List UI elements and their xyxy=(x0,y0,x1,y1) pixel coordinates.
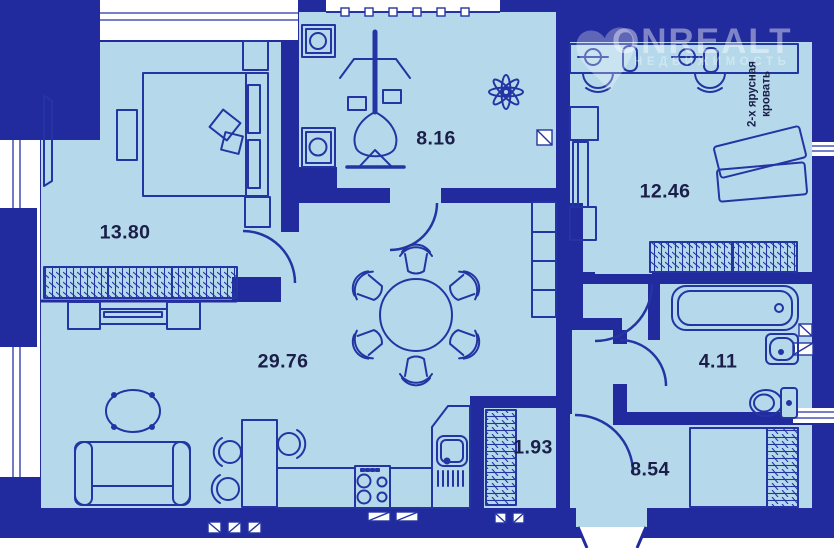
room-label-loggia: 8.16 xyxy=(416,128,456,151)
room-label-kids: 12.46 xyxy=(640,181,691,204)
kitchen-sink xyxy=(432,406,470,508)
room-label-bedroom: 13.80 xyxy=(100,222,151,245)
storage-wardrobe xyxy=(486,410,516,505)
room-label-bathroom: 4.11 xyxy=(699,351,737,374)
wardrobe xyxy=(44,267,237,298)
room-label-storage: 1.93 xyxy=(513,437,553,460)
floor-plan: 13.80 8.16 12.46 29.76 4.11 1.93 8.54 2-… xyxy=(0,0,834,548)
watermark-tagline: НЕДВИЖИМОСТЬ xyxy=(634,56,814,68)
stove xyxy=(355,466,390,508)
wardrobe xyxy=(650,242,797,272)
hall-wardrobe xyxy=(767,428,798,507)
room-label-living: 29.76 xyxy=(258,351,309,374)
room-label-hallway: 8.54 xyxy=(630,459,670,482)
floor-plan-svg xyxy=(0,0,834,548)
